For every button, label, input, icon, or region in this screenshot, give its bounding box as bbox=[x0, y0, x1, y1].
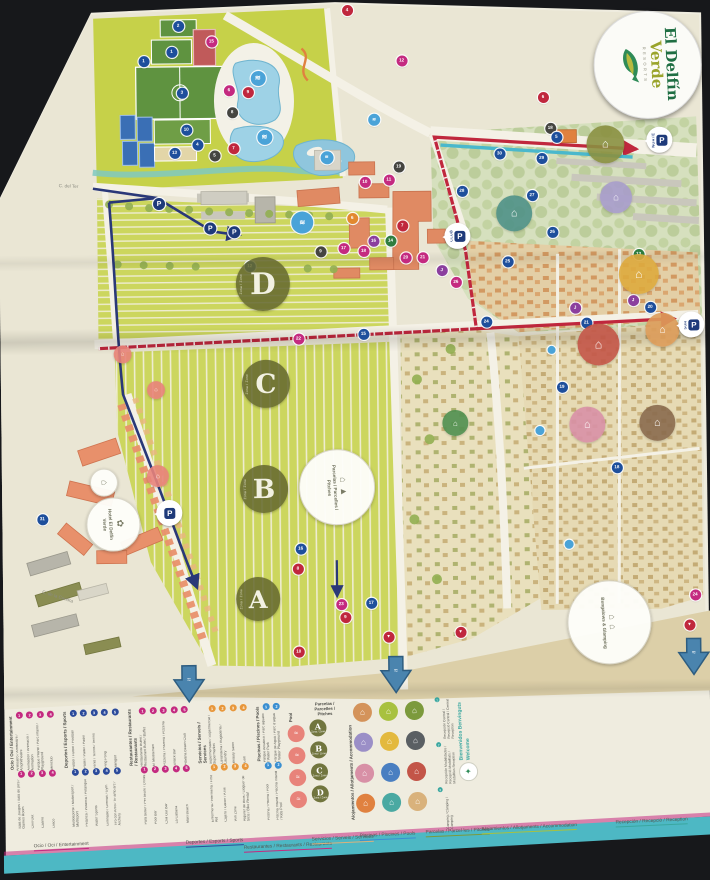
map-marker: 8 bbox=[227, 107, 238, 118]
legend-welcome-note: 2Recepción Modalidades / Recepció Modali… bbox=[436, 742, 456, 785]
map-marker: 12 bbox=[396, 55, 407, 66]
legend-section-alojamientos: Alojamientos / Allotjaments / Accommodat… bbox=[346, 698, 430, 821]
legend-zone-circle-d: DZona / Zone bbox=[311, 785, 329, 803]
legend-item-label: Tenis / Tennis / Tennis bbox=[92, 718, 98, 768]
legend-item-label: Piscina Infantil / Piscina infantil / Ki… bbox=[275, 770, 285, 820]
map-marker: 31 bbox=[37, 514, 48, 525]
map-photo: 2113104131569875≋≋≋≋≋4126185302928272625… bbox=[0, 0, 710, 880]
legend-section-restaurantes: Restaurantes / Restaurants / Restaurants… bbox=[125, 706, 194, 825]
beach-arrows-layer: ≈ ≈ ≈ bbox=[0, 0, 705, 4]
map-marker: 27 bbox=[526, 190, 537, 201]
legend-item-dot: 2 bbox=[219, 705, 226, 712]
map-marker: 10 bbox=[359, 176, 370, 187]
parkings-layer: NORTEPCLUBPSURPP bbox=[0, 0, 705, 4]
legend-row: 1Para beber / Per beure / Drinks2Pool Ba… bbox=[139, 764, 194, 824]
parking-p-icon: P bbox=[656, 134, 667, 145]
legend-item-dot: 3 bbox=[231, 763, 238, 770]
map-marker: 16 bbox=[295, 543, 306, 554]
legend-item-label: Fútbol / Futbol / Football bbox=[71, 718, 77, 768]
map-marker: 10 bbox=[293, 646, 304, 657]
accommodation-zone-circle: ⌂ bbox=[147, 465, 169, 487]
map-marker: ≋ bbox=[291, 211, 313, 233]
legend-item-label: Gimnasio / Gimnàs / Gym bbox=[105, 776, 111, 826]
legend-section-body: Piscinas / Piscines / Pools1Parque Acuát… bbox=[254, 703, 286, 821]
legend-item-dot: 5 bbox=[183, 764, 190, 771]
legend-row: 1Restaurante Buffet / Restaurant Bufet /… bbox=[137, 706, 192, 766]
map-marker bbox=[564, 539, 573, 548]
legend-rows: 1Anfiteatro / Amfiteatre / Amphitheatre2… bbox=[14, 711, 60, 829]
dolphin-icon bbox=[620, 44, 644, 87]
map-marker: 5 bbox=[209, 150, 220, 161]
map-marker: 7 bbox=[397, 220, 408, 231]
legend-zone-sub: Zona / Zone bbox=[311, 730, 325, 733]
legend-item: 5Tiro con Arco / Tir amb arc / Archery bbox=[112, 767, 125, 826]
map-marker: 18 bbox=[611, 462, 622, 473]
label-circle-content: ⌂ ⌂Bungalows & Glamping bbox=[599, 596, 619, 649]
legend-item-label: Restaurante Buffet / Restaurant Bufet / … bbox=[139, 716, 149, 766]
map-marker: 19 bbox=[556, 381, 567, 392]
legend-item-dot: 4 bbox=[101, 709, 108, 716]
map-marker: 11 bbox=[383, 174, 394, 185]
legend-item: 2Piscina Infantil / Piscina infantil / K… bbox=[273, 761, 286, 820]
legend-zone-sub: Zona / Zone bbox=[312, 752, 326, 755]
legend-item-label: Maxi Beach bbox=[185, 773, 191, 823]
legend-rows: 1Supermercado / Supermercat / Supermarke… bbox=[207, 704, 253, 822]
accommodation-zone-circle: ⌂ bbox=[114, 345, 132, 363]
label-circle-icon: ✿ bbox=[114, 520, 126, 529]
map-marker: 22 bbox=[293, 333, 304, 344]
map-marker: 9 bbox=[340, 612, 351, 623]
beach-access-arrow: ≈ bbox=[677, 636, 710, 681]
legend-item-label: Lavandería / Bugaderia / Laundry bbox=[219, 713, 229, 763]
map-marker bbox=[535, 426, 544, 435]
map-marker: ≋ bbox=[320, 151, 333, 164]
parking-balloon-hotel: P bbox=[156, 500, 182, 526]
legend-pool-circle: ≈ bbox=[290, 790, 308, 808]
legend-zone-circle-c: CZona / Zone bbox=[311, 763, 329, 781]
accommodation-zone-circle: ⌂ bbox=[569, 406, 605, 442]
legend-zone-sub: Zona / Zone bbox=[313, 774, 327, 777]
legend-item-dot: 3 bbox=[229, 704, 236, 711]
legend-rows: 1Parque Acuático / Parc aquàtic / Water … bbox=[261, 703, 286, 821]
map-marker: 14 bbox=[385, 235, 396, 246]
map-marker: 6 bbox=[537, 91, 548, 102]
legend-item-label: Pádel / Pàdel / Padel bbox=[82, 718, 88, 768]
map-marker: J bbox=[570, 302, 581, 313]
map-marker: 19 bbox=[393, 161, 404, 172]
map-marker: 2 bbox=[173, 20, 184, 31]
label-circle-text: Hotel El Delfín Verde bbox=[100, 502, 114, 547]
legend-accommodation-circle: ⌂ bbox=[355, 763, 375, 783]
legend-item-dot: 1 bbox=[18, 770, 25, 777]
legend-item-label: Petanca / Petanca / Petanque bbox=[84, 776, 90, 826]
legend-section-servicios: Servicios / Serveis / Services1Supermerc… bbox=[195, 704, 253, 823]
label-circle-text: Parcelas / Parcelles / Pitches bbox=[324, 456, 339, 519]
legend-item-dot: 2 bbox=[28, 770, 35, 777]
legend-row: 1Fútbol / Futbol / Football2Pádel / Pàde… bbox=[68, 708, 123, 768]
map-marker: 21 bbox=[417, 252, 428, 263]
legend-item: 5Minigolf bbox=[110, 708, 123, 767]
zone-sub-label: Zona / Zone bbox=[243, 479, 247, 500]
legend-item-label: Golf bbox=[242, 712, 248, 762]
zone-letter: B bbox=[253, 473, 276, 504]
map-marker: 9 bbox=[315, 246, 326, 257]
legend-note-dot: 3 bbox=[438, 787, 443, 792]
legend-accommodation-circle: ⌂ bbox=[353, 702, 373, 722]
legend-accommodation-circle: ⌂ bbox=[407, 761, 427, 781]
map-marker: 29 bbox=[536, 152, 547, 163]
legend-item-dot: 1 bbox=[15, 712, 22, 719]
map-marker: 26 bbox=[547, 226, 558, 237]
parking-balloon-sur: SURP bbox=[678, 311, 704, 337]
legend-note-dot: 1 bbox=[434, 697, 439, 702]
legend-item-dot: 2 bbox=[149, 707, 156, 714]
parking-balloon-club: CLUBP bbox=[444, 223, 470, 249]
map-marker: 26 bbox=[450, 276, 461, 287]
street-labels-layer: C. del TerC. de la CendraC. de la Cendra bbox=[0, 0, 705, 4]
legend-item-label: Beauty Salon bbox=[231, 713, 237, 763]
legend-item-label: Para beber / Per beure / Drinks bbox=[143, 774, 149, 824]
legend-accommodation-circle: ⌂ bbox=[408, 791, 428, 811]
legend-item-dot: 4 bbox=[49, 769, 56, 776]
map-marker: 20 bbox=[400, 252, 411, 263]
legend-item-label: Parque Infantil / Parc infantil / Playgr… bbox=[36, 719, 46, 769]
legend-item-dot: 2 bbox=[275, 761, 282, 768]
legend-row: 1Piscina / Piscina / Pool2Piscina Infant… bbox=[263, 761, 286, 820]
label-circle-bungalows: ⌂ ⌂Bungalows & Glamping bbox=[567, 580, 652, 665]
legend-item: 4Alquiler de Bicis / Lloguer de bicis / … bbox=[240, 762, 253, 821]
legend-accommodation-grid: ⌂⌂⌂⌂⌂⌂⌂⌂⌂⌂⌂⌂ bbox=[353, 701, 430, 820]
legend-zone-letter: B bbox=[315, 744, 322, 752]
legend-section-welcome: 1Recepción Central / Recepció Central / … bbox=[430, 696, 479, 829]
legend-welcome-right: Bienvenidos Benvinguts Welcome✦ bbox=[456, 696, 480, 829]
legend-pool-circle: ≈ bbox=[288, 746, 306, 764]
map-marker: J bbox=[628, 295, 639, 306]
legend-item-dot: 4 bbox=[47, 711, 54, 718]
legend-item-dot: 3 bbox=[39, 769, 46, 776]
legend-welcome-note: 1Recepción Central / Recepció Central / … bbox=[434, 697, 454, 740]
street-label: C. del Ter bbox=[59, 183, 79, 189]
parking-p-icon: P bbox=[688, 319, 699, 330]
parking-p-icon: P bbox=[454, 230, 465, 241]
map-marker: J bbox=[436, 265, 447, 276]
legend-section-piscinas: Piscinas / Piscines / Pools1Parque Acuát… bbox=[254, 703, 286, 821]
legend-item-dot: 5 bbox=[111, 708, 118, 715]
map-marker: 18 bbox=[358, 245, 369, 256]
legend-item-label: Snack Bar bbox=[172, 715, 178, 765]
legend-row: 1Enfermería / Infermeria / First Aid2Caj… bbox=[209, 762, 253, 822]
parking-dot: P bbox=[228, 226, 240, 238]
legend-item-label: Anfiteatro / Amfiteatre / Amphitheatre bbox=[15, 720, 25, 770]
zone-circles-layer: Zona / ZoneDZona / ZoneCZona / ZoneBZona… bbox=[0, 0, 705, 4]
legend-item-label: Casino bbox=[40, 778, 46, 828]
map-marker: 7 bbox=[228, 143, 239, 154]
legend-item-dot: 1 bbox=[210, 763, 217, 770]
legend-accommodation-circle: ⌂ bbox=[379, 702, 399, 722]
legend-item-dot: 2 bbox=[221, 763, 228, 770]
label-circle-hotel: ✿Hotel El Delfín Verde bbox=[86, 497, 141, 552]
legend-accommodation-circle: ⌂ bbox=[354, 733, 374, 753]
legend-row: 1Supermercado / Supermercat / Supermarke… bbox=[207, 704, 251, 764]
legend-item-dot: 2 bbox=[26, 711, 33, 718]
zone-sub-label: Zona / Zone bbox=[245, 374, 249, 395]
legend-item-dot: 4 bbox=[242, 762, 249, 769]
legend-zone-circle-a: AZona / Zone bbox=[309, 719, 327, 737]
parking-p-icon: P bbox=[164, 507, 175, 518]
legend-section-body: Deportes / Esports / Sports1Fútbol / Fut… bbox=[61, 708, 125, 827]
legend-item-label: Chill Out bbox=[30, 778, 36, 828]
legend-pool-circle: ≈ bbox=[287, 724, 305, 742]
legend-item-dot: 3 bbox=[92, 768, 99, 775]
legend-item-dot: 1 bbox=[71, 768, 78, 775]
legend-item-label: Tiro con Arco / Tir amb arc / Archery bbox=[113, 775, 123, 825]
legend-item-label: Parque Acuático / Parc aquàtic / Water P… bbox=[262, 712, 272, 762]
legend-item-label: Multideporte / Multiesport / Multisport bbox=[71, 777, 81, 827]
map-marker: 4 bbox=[192, 139, 203, 150]
legend-section-header: Restaurantes / Restaurants / Restaurants bbox=[126, 708, 138, 766]
legend-item-label: Supermercado / Supermercat / Supermarket bbox=[208, 713, 218, 763]
map-marker: 24 bbox=[690, 589, 701, 600]
legend-note-dot: 2 bbox=[436, 742, 441, 747]
legend-item-dot: 1 bbox=[139, 707, 146, 714]
legend-item-label: Piscina / Piscina / Pool bbox=[266, 770, 272, 820]
map-marker: ▼ bbox=[684, 619, 695, 630]
legend-zone-letter: A bbox=[315, 722, 321, 730]
legend-row: 1Parque Acuático / Parc aquàtic / Water … bbox=[261, 703, 284, 762]
legend-item-dot: 2 bbox=[82, 768, 89, 775]
legend-section-header: Servicios / Serveis / Services bbox=[196, 705, 208, 763]
legend-item-label: Cajero / Caixer / ATM bbox=[223, 772, 229, 822]
zone-sub-label: Zona / Zone bbox=[239, 589, 243, 610]
label-circle-icon: ⌂ bbox=[99, 479, 109, 486]
legend-accommodation-circle: ⌂ bbox=[382, 792, 402, 812]
legend-item-dot: 1 bbox=[262, 703, 269, 710]
beach-access-arrow: ≈ bbox=[379, 654, 413, 699]
legend-item-label: Pizzería / Pizzeria / Pizzeria bbox=[162, 715, 168, 765]
map-marker: 15 bbox=[358, 328, 369, 339]
legend-item-dot: 1 bbox=[264, 762, 271, 769]
accommodation-zone-circle: ⌂ bbox=[442, 410, 468, 436]
legend-item-label: Havana Beach Club bbox=[183, 714, 189, 764]
map-marker: 15 bbox=[206, 36, 217, 47]
legend-item-dot: 5 bbox=[113, 767, 120, 774]
legend-welcome-note: 3Camping / Càmping / Camping bbox=[438, 787, 458, 830]
zone-circle-b: Zona / ZoneB bbox=[240, 465, 289, 514]
label-circle-icon: ⌂ ⌂ bbox=[607, 614, 618, 631]
legend-accommodation-circle: ⌂ bbox=[406, 731, 426, 751]
parking-balloon-norte: NORTEP bbox=[646, 127, 672, 153]
zone-letter: D bbox=[250, 266, 276, 301]
legend-section-ocio: Ocio / Oci / Entertainment1Anfiteatro / … bbox=[7, 711, 60, 830]
legend-section-pool-circles: Pool≈≈≈≈ bbox=[287, 702, 308, 811]
legend-item: 5Havana Beach Club bbox=[179, 706, 192, 765]
legend-item-dot: 2 bbox=[151, 765, 158, 772]
legend-item-dot: 3 bbox=[162, 765, 169, 772]
legend-pitches-header: Parcelas / Parcelles / Pitches bbox=[310, 701, 341, 717]
legend-item-dot: 1 bbox=[69, 710, 76, 717]
label-circle-content: ⌂ ▲Parcelas / Parcelles / Pitches bbox=[324, 455, 350, 519]
legend-item-label: El Mediterrani bbox=[151, 716, 157, 766]
street-label: C. de la Cendra bbox=[42, 589, 74, 603]
legend-item: 4Miniclub bbox=[45, 711, 58, 770]
map-marker: 1 bbox=[138, 56, 149, 67]
paper-tilt-wrapper: 2113104131569875≋≋≋≋≋4126185302928272625… bbox=[0, 0, 710, 880]
parking-name: SUR bbox=[683, 320, 687, 329]
map-marker: 1 bbox=[166, 46, 177, 57]
legend-item: 2Parque de Agua / Parc d'aigua / Water P… bbox=[271, 703, 284, 762]
mini-dolphin-icon: ✦ bbox=[458, 762, 478, 782]
zone-circle-c: Zona / ZoneC bbox=[242, 360, 291, 409]
legend-item-label: Enfermería / Infermeria / First Aid bbox=[210, 772, 220, 822]
legend-accommodation-circle: ⌂ bbox=[380, 732, 400, 752]
overlay-layer: 2113104131569875≋≋≋≋≋4126185302928272625… bbox=[0, 0, 710, 880]
legend-note-text: Recepción Modalidades / Recepció Modalit… bbox=[443, 742, 456, 784]
legend-pool-header: Pool bbox=[288, 702, 304, 723]
markers-layer: 2113104131569875≋≋≋≋≋4126185302928272625… bbox=[0, 0, 705, 4]
legend-item-label: Disco bbox=[51, 778, 57, 828]
parking-dot: P bbox=[153, 198, 165, 210]
label-circle-content: ✿Hotel El Delfín Verde bbox=[100, 502, 126, 548]
legend-accommodation-circle: ⌂ bbox=[405, 701, 425, 721]
label-circle-house: ⌂ bbox=[90, 468, 118, 496]
label-circle-pitches: ⌂ ▲Parcelas / Parcelles / Pitches bbox=[299, 449, 376, 526]
parking-dot: P bbox=[204, 222, 216, 234]
legend-item-label: Sala de Juegos / Sala de jocs / Games Ro… bbox=[17, 779, 27, 829]
map-marker: 13 bbox=[169, 147, 180, 158]
legend-note-text: Camping / Càmping / Camping bbox=[444, 787, 453, 829]
legend-item-dot: 3 bbox=[160, 707, 167, 714]
svg-text:≈: ≈ bbox=[187, 677, 191, 684]
legend-item-label: Minigolf bbox=[113, 717, 119, 767]
map-marker: ▼ bbox=[383, 631, 394, 642]
legend-item-label: La Cabana bbox=[174, 773, 180, 823]
resort-logo: El Delfín Verde RESORTS bbox=[593, 10, 702, 119]
legend-item: 5Maxi Beach bbox=[181, 764, 194, 823]
svg-text:≈: ≈ bbox=[692, 649, 696, 656]
legend-item: 4Disco bbox=[47, 769, 60, 828]
legend-zone-sub: Zona / Zone bbox=[313, 796, 327, 799]
down-arrow-icon: ≈ bbox=[172, 664, 206, 704]
map-marker: 16 bbox=[368, 235, 379, 246]
legend-pool-circle: ≈ bbox=[289, 768, 307, 786]
legend-note-text: Recepción Central / Recepció Central / C… bbox=[441, 697, 454, 739]
map-marker: 8 bbox=[292, 563, 303, 574]
legend-item-dot: 2 bbox=[80, 709, 87, 716]
legend-accommodation-body: Alojamientos / Allotjaments / Accommodat… bbox=[346, 698, 430, 821]
legend-item-dot: 3 bbox=[36, 711, 43, 718]
parking-name: CLUB bbox=[449, 230, 453, 242]
accommodation-zone-circle: ⌂ bbox=[600, 181, 632, 213]
legend-item-dot: 1 bbox=[141, 766, 148, 773]
label-circles-layer: ⌂ ▲Parcelas / Parcelles / Pitches⌂ ⌂Bung… bbox=[0, 0, 705, 4]
legend-item-dot: 4 bbox=[240, 704, 247, 711]
map-marker: 9 bbox=[242, 87, 253, 98]
legend-welcome-notes: 1Recepción Central / Recepció Central / … bbox=[434, 697, 457, 830]
legend-section-body: Servicios / Serveis / Services1Supermerc… bbox=[195, 704, 253, 823]
down-arrow-icon: ≈ bbox=[379, 654, 413, 694]
zone-sub-label: Zona / Zone bbox=[239, 274, 243, 295]
legend-row: 1Multideporte / Multiesport / Multisport… bbox=[70, 767, 125, 827]
legend-item: 4Golf bbox=[238, 704, 251, 763]
map-marker: 10 bbox=[181, 124, 192, 135]
colored-circles-layer: ⌂⌂⌂⌂⌂⌂⌂⌂⌂⌂⌂⌂ bbox=[0, 0, 705, 4]
legend-zone-circle-b: BZona / Zone bbox=[310, 741, 328, 759]
legend-item-label: Chill Out Bar bbox=[164, 774, 170, 824]
down-arrow-icon: ≈ bbox=[677, 636, 710, 676]
map-marker: ≋ bbox=[250, 70, 265, 85]
legend-zone-letter: C bbox=[316, 766, 323, 774]
beach-access-arrow: ≈ bbox=[172, 664, 206, 709]
accommodation-zone-circle: ⌂ bbox=[639, 405, 675, 441]
legend-item-label: Wifi Zone bbox=[233, 771, 239, 821]
zone-letter: C bbox=[255, 368, 276, 399]
legend-item-dot: 4 bbox=[172, 765, 179, 772]
zone-circle-d: Zona / ZoneD bbox=[236, 257, 291, 312]
legend-item-dot: 3 bbox=[90, 709, 97, 716]
legend-item-dot: 1 bbox=[208, 705, 215, 712]
legend-row: 1Sala de Juegos / Sala de jocs / Games R… bbox=[16, 769, 60, 829]
zone-letter: A bbox=[249, 584, 268, 613]
legend-section-pitches: Parcelas / Parcelles / PitchesAZona / Zo… bbox=[309, 701, 345, 805]
map-marker bbox=[548, 346, 556, 354]
map-marker: 5 bbox=[551, 131, 562, 142]
legend-item-label: Water Sports bbox=[94, 776, 100, 826]
legend-accommodation-circle: ⌂ bbox=[381, 762, 401, 782]
accommodation-zone-circle: ⌂ bbox=[496, 195, 532, 231]
zone-circle-a: Zona / ZoneA bbox=[236, 577, 280, 621]
legend-rows: 1Restaurante Buffet / Restaurant Bufet /… bbox=[137, 706, 194, 825]
parking-name: NORTE bbox=[651, 132, 655, 147]
map-marker: 17 bbox=[366, 597, 377, 608]
accommodation-zone-circle: ⌂ bbox=[619, 254, 659, 294]
legend-section-deportes: Deportes / Esports / Sports1Fútbol / Fut… bbox=[61, 708, 125, 827]
legend-item-label: Animación / Animació / Animation bbox=[26, 720, 36, 770]
map-marker: 28 bbox=[456, 185, 467, 196]
label-circle-icon: ⌂ ▲ bbox=[338, 477, 349, 497]
legend-footer-labels: Ocio / Oci / EntertainmentDeportes / Esp… bbox=[0, 0, 705, 4]
legend-item-label: Parque de Agua / Parc d'aigua / Water Pl… bbox=[273, 711, 283, 761]
legend-item-label: Pool Bar bbox=[153, 774, 159, 824]
map-marker: ▼ bbox=[455, 626, 466, 637]
label-circle-content: ⌂ bbox=[98, 479, 109, 486]
map-marker: 4 bbox=[341, 5, 352, 16]
legend-rows: 1Fútbol / Futbol / Football2Pádel / Pàde… bbox=[68, 708, 125, 827]
map-marker: 17 bbox=[338, 243, 349, 254]
legend: Ocio / Oci / Entertainment1Anfiteatro / … bbox=[7, 688, 710, 854]
legend-welcome-title: Bienvenidos Benvinguts Welcome bbox=[456, 696, 472, 760]
map-marker: 20 bbox=[645, 301, 656, 312]
legend-zone-letter: D bbox=[317, 788, 324, 796]
legend-item-dot: 4 bbox=[170, 706, 177, 713]
legend-item-label: Ping Pong bbox=[103, 717, 109, 767]
map-marker: ≋ bbox=[257, 129, 272, 144]
map-marker: 30 bbox=[494, 148, 505, 159]
legend-accommodation-circle: ⌂ bbox=[356, 793, 376, 813]
map-marker: 23 bbox=[336, 599, 347, 610]
accommodation-zone-circle: ⌂ bbox=[586, 125, 624, 163]
map-marker: 6 bbox=[347, 212, 358, 223]
legend-item-label: Alquiler de Bicis / Lloguer de bicis / B… bbox=[242, 771, 252, 821]
legend-item-dot: 4 bbox=[103, 767, 110, 774]
legend-welcome-block: 1Recepción Central / Recepció Central / … bbox=[434, 696, 479, 829]
legend-section-body: Ocio / Oci / Entertainment1Anfiteatro / … bbox=[7, 711, 60, 830]
legend-item-dot: 5 bbox=[181, 706, 188, 713]
map-marker: 25 bbox=[502, 256, 513, 267]
map-marker: 3 bbox=[176, 87, 187, 98]
map-marker: ≋ bbox=[368, 114, 380, 126]
accommodation-zone-circle: ⌂ bbox=[577, 323, 619, 365]
legend-item-label: Miniclub bbox=[49, 719, 55, 769]
